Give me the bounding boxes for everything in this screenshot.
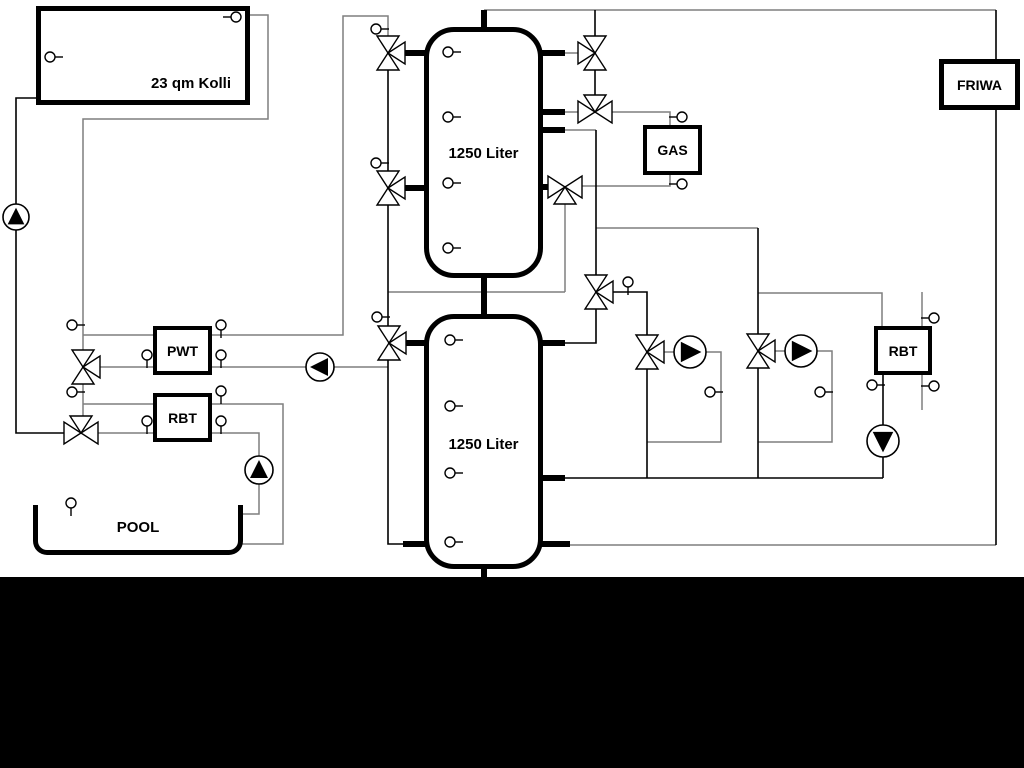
sensor-rbt-right-top-icon	[921, 313, 939, 323]
sensor-tank2-2-icon	[445, 401, 463, 411]
sensor-tank2-3-icon	[445, 468, 463, 478]
valve-pwt-icon	[72, 350, 100, 384]
sensor-rbt-left-top-icon	[216, 386, 226, 404]
sensor-pool-icon	[66, 498, 76, 516]
bottom-black-band	[0, 577, 1024, 768]
heating-pump-2-icon	[785, 335, 817, 367]
heating-pump-1-icon	[674, 336, 706, 368]
valve-gas-return-icon	[548, 176, 582, 204]
sensor-rbt-left-out-icon	[216, 416, 226, 434]
sensor-tank2-1-icon	[445, 335, 463, 345]
sensor-riser-3-icon	[372, 312, 390, 322]
sensor-mixer-icon	[623, 277, 633, 295]
pool-pump-icon	[245, 456, 273, 484]
valve-gas-supply-icon	[578, 95, 612, 123]
sensor-rbt-right-bot-icon	[921, 381, 939, 391]
sensor-pwt-left-icon	[142, 350, 152, 368]
valve-tank2-top-left-icon	[378, 326, 406, 360]
sensor-pwt-right-top-icon	[216, 320, 226, 338]
sensor-collector-right-icon	[223, 12, 241, 22]
sensor-pwt-right-icon	[216, 350, 226, 368]
valve-mixer-center-icon	[585, 275, 613, 309]
sensor-collector-left-icon	[45, 52, 63, 62]
sensor-gas-top-icon	[669, 112, 687, 122]
valve-pool-icon	[64, 416, 98, 444]
sensor-riser-2-icon	[371, 158, 389, 168]
pwt-charge-pump-icon	[306, 353, 334, 381]
valve-tank1-bottom-left-icon	[377, 171, 405, 205]
sensor-tank1-1-icon	[443, 47, 461, 57]
sensor-tank2-4-icon	[445, 537, 463, 547]
sensor-rbt-left-in-icon	[142, 416, 152, 434]
valve-heating-1-icon	[636, 335, 664, 369]
sensor-gas-bottom-icon	[669, 179, 687, 189]
sensor-heating-1-icon	[705, 387, 723, 397]
rbt-right-pump-icon	[867, 425, 899, 457]
sensor-heating-2-icon	[815, 387, 833, 397]
sensor-riser-1-icon	[371, 24, 389, 34]
sensor-left-riser-1-icon	[67, 320, 85, 330]
sensor-tank1-2-icon	[443, 112, 461, 122]
sensor-tank1-3-icon	[443, 178, 461, 188]
sensor-left-riser-2-icon	[67, 387, 85, 397]
schematic-canvas: 23 qm Kolli 1250 Liter 1250 Liter PWT RB…	[0, 0, 1024, 768]
valve-tank1-top-left-icon	[377, 36, 405, 70]
solar-pump-icon	[3, 204, 29, 230]
valve-heating-2-icon	[747, 334, 775, 368]
valve-tank1-top-right-icon	[578, 36, 606, 70]
sensor-tank1-4-icon	[443, 243, 461, 253]
sensor-rbt-right-left-icon	[867, 380, 885, 390]
